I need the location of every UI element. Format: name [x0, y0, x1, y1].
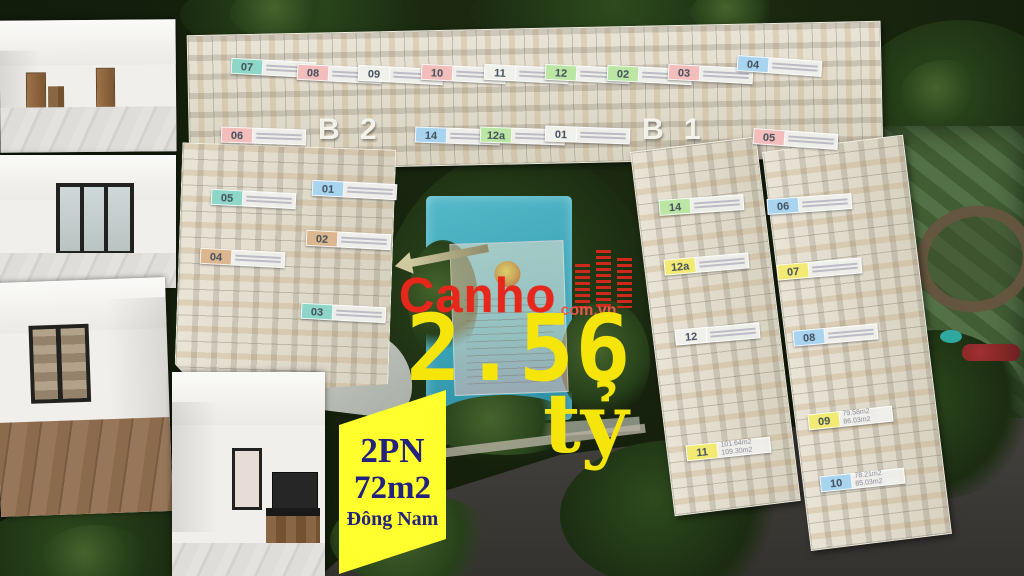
photo-living-room: [0, 19, 177, 153]
countertop: [266, 508, 320, 516]
photo-bedroom: [0, 277, 173, 517]
wood-floor: [0, 417, 173, 517]
building-label-b1: B 1: [642, 113, 707, 147]
building-left-wing: [174, 142, 397, 401]
glass-pane: [84, 187, 104, 251]
bedrooms-text: 2PN: [360, 433, 424, 469]
marble-floor: [0, 106, 176, 152]
trees-right: [900, 60, 990, 130]
city-view: [33, 329, 58, 400]
glass-pane: [60, 187, 80, 251]
balcony-glass-door: [56, 183, 134, 255]
wall-shade: [172, 402, 218, 532]
area-text: 72m2: [354, 471, 431, 505]
kitchen-door: [232, 448, 262, 510]
marble-floor: [172, 543, 325, 576]
photo-balcony-room: [0, 155, 176, 288]
kitchen-appliances: [272, 472, 318, 512]
direction-text: Đông Nam: [347, 507, 439, 531]
building-label-b2: B 2: [318, 113, 383, 147]
garden-flower-bed: [962, 344, 1020, 361]
garden-pond: [940, 330, 962, 343]
bedroom-window: [28, 324, 91, 404]
glass-pane: [235, 451, 259, 507]
city-view: [61, 328, 87, 399]
glass-pane: [108, 187, 130, 251]
photo-kitchen: [172, 372, 325, 576]
price-unit: tỷ: [543, 384, 629, 464]
listing-image: B 2 B 1 07 08 09 10 11 12 02 03 04: [0, 0, 1024, 576]
